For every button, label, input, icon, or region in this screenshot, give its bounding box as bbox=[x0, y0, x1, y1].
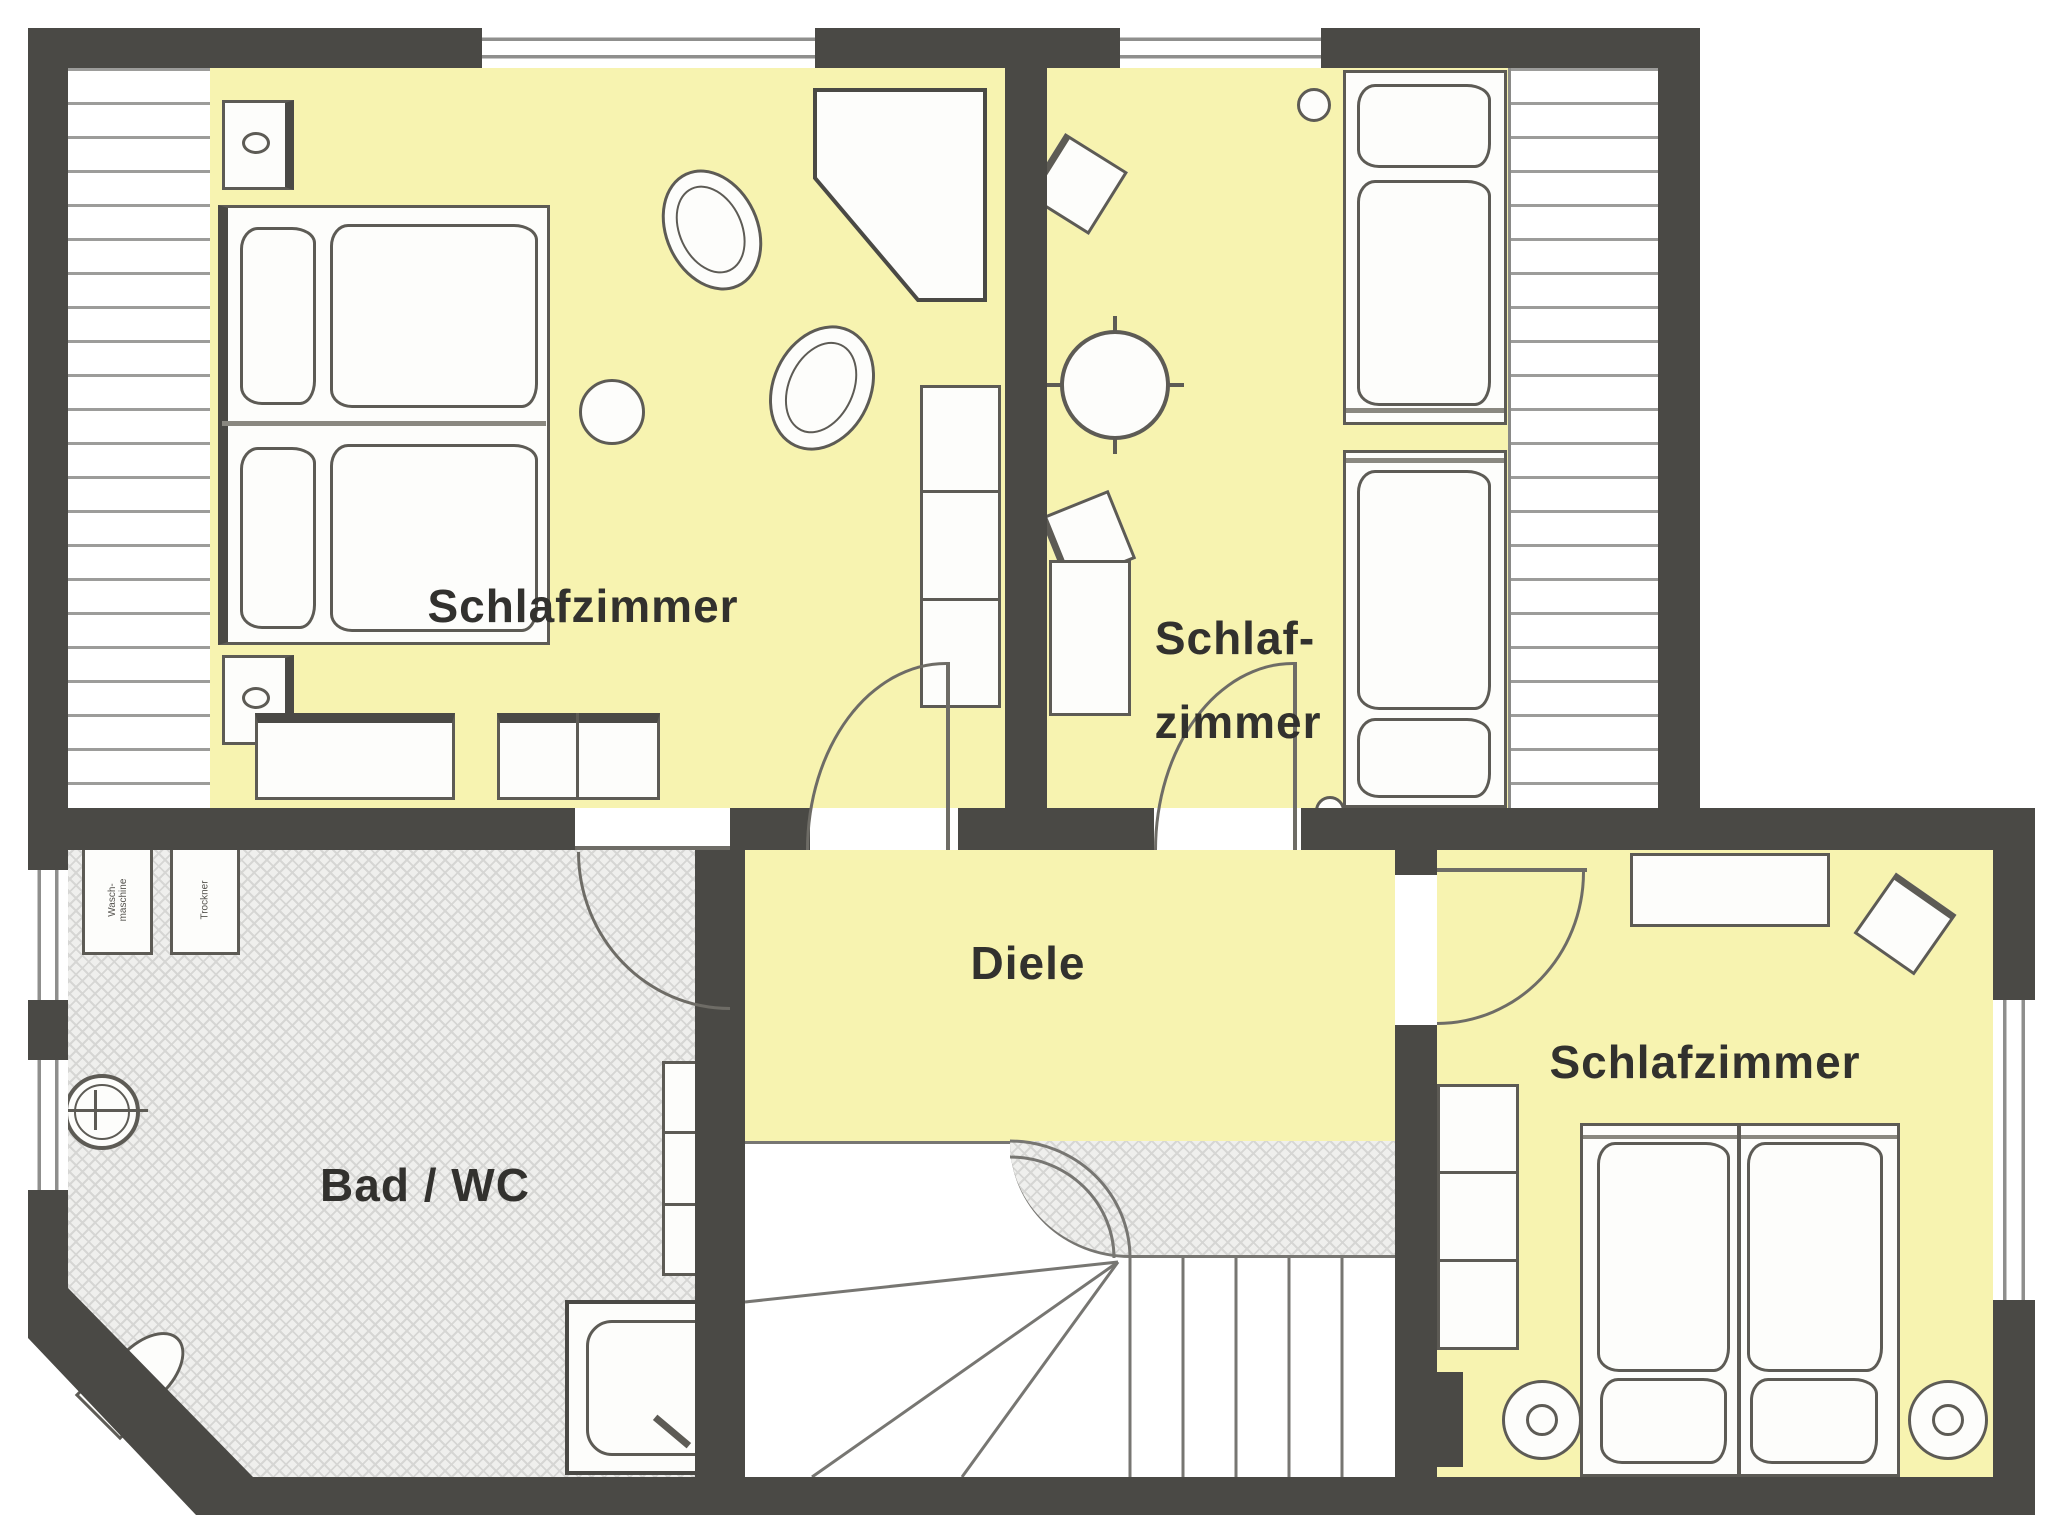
wall-top bbox=[28, 28, 1700, 68]
dryer-label: Trockner bbox=[200, 880, 211, 919]
bed-center-divider bbox=[222, 421, 546, 426]
wardrobe-divider bbox=[1437, 1259, 1519, 1262]
bed-pillow bbox=[1750, 1378, 1878, 1464]
nightstand-lamp-icon bbox=[242, 687, 270, 709]
room-label-bedroom-top-left: Schlafzimmer bbox=[427, 579, 738, 633]
round-table bbox=[1060, 330, 1170, 440]
wall-left bbox=[28, 28, 68, 870]
dresser bbox=[920, 385, 1001, 708]
nightstand-lamp-icon bbox=[1932, 1404, 1964, 1436]
wall-left bbox=[28, 1000, 68, 1060]
bedroom-top-right-sloped-ceiling-area bbox=[1508, 68, 1661, 808]
washbasin-tap-icon bbox=[56, 1109, 148, 1112]
wall-middle bbox=[68, 808, 575, 850]
bed-pillow bbox=[240, 227, 316, 405]
dresser-divider bbox=[920, 490, 1001, 493]
window bbox=[482, 28, 815, 68]
bed-mattress bbox=[1597, 1142, 1730, 1372]
nightstand-lamp-icon bbox=[242, 132, 270, 154]
dresser-divider bbox=[920, 598, 1001, 601]
radiator bbox=[1437, 1372, 1463, 1467]
window bbox=[1120, 28, 1321, 68]
nightstand bbox=[222, 100, 294, 190]
round-nightstand bbox=[1908, 1380, 1988, 1460]
window bbox=[1993, 1000, 2035, 1300]
window bbox=[28, 870, 68, 1000]
washing-machine-label: Wasch- maschine bbox=[107, 879, 129, 922]
door-leaf bbox=[575, 846, 730, 850]
room-label-bedroom-top-right-line1: Schlaf- bbox=[1155, 611, 1315, 665]
room-label-hallway: Diele bbox=[971, 936, 1086, 990]
bed-pillow bbox=[1600, 1378, 1727, 1464]
dryer: Trockner bbox=[170, 845, 240, 955]
wardrobe bbox=[1437, 1084, 1519, 1350]
wall-middle bbox=[730, 808, 810, 850]
bed-mattress bbox=[1357, 470, 1491, 710]
desk bbox=[1630, 853, 1830, 927]
desk bbox=[1049, 560, 1131, 716]
washbasin-bowl bbox=[74, 1084, 130, 1140]
nightstand-lamp-icon bbox=[1526, 1404, 1558, 1436]
sideboard bbox=[255, 713, 455, 800]
door-leaf bbox=[946, 662, 950, 850]
bed-mattress bbox=[330, 224, 538, 408]
door-leaf bbox=[1293, 662, 1297, 850]
bed-pillow bbox=[1357, 84, 1491, 168]
wall-right-lower bbox=[1993, 850, 2035, 1000]
room-label-bathroom: Bad / WC bbox=[320, 1158, 530, 1212]
stool bbox=[579, 379, 645, 445]
wall-hallway-right bbox=[1395, 850, 1437, 875]
ceiling-lamp-icon bbox=[1297, 88, 1331, 122]
wall-middle bbox=[958, 808, 1154, 850]
stair-landing-hatch bbox=[1010, 1141, 1395, 1258]
window bbox=[28, 1060, 68, 1190]
door-opening bbox=[1395, 875, 1437, 1025]
hallway-floor bbox=[745, 850, 1395, 1141]
washbasin-tap-icon bbox=[94, 1090, 97, 1130]
bed-center-divider bbox=[1737, 1126, 1741, 1474]
sideboard-divider bbox=[576, 713, 579, 800]
room-label-bedroom-bottom-right: Schlafzimmer bbox=[1549, 1035, 1860, 1089]
bed-mattress bbox=[1747, 1142, 1883, 1372]
washing-machine: Wasch- maschine bbox=[82, 845, 153, 955]
room-label-bedroom-top-right-line2: zimmer bbox=[1154, 695, 1321, 749]
wall-bottom bbox=[200, 1477, 2035, 1515]
floor-plan: Wasch- maschine Trockner bbox=[0, 0, 2048, 1538]
door-opening bbox=[575, 808, 730, 850]
bed-head-rail bbox=[1346, 458, 1504, 463]
bedroom-top-left-sloped-ceiling-area bbox=[68, 68, 213, 808]
wall-hallway-right bbox=[1395, 1025, 1437, 1515]
wall-right-upper bbox=[1658, 28, 1700, 850]
wall-left bbox=[28, 1190, 68, 1295]
bed-foot-rail bbox=[1346, 408, 1504, 413]
wall-between-bedrooms bbox=[1005, 68, 1047, 808]
bed-pillow bbox=[240, 447, 316, 629]
wardrobe-divider bbox=[1437, 1171, 1519, 1174]
round-nightstand bbox=[1502, 1380, 1582, 1460]
bed-pillow bbox=[1357, 718, 1491, 798]
bed-mattress bbox=[1357, 180, 1491, 406]
